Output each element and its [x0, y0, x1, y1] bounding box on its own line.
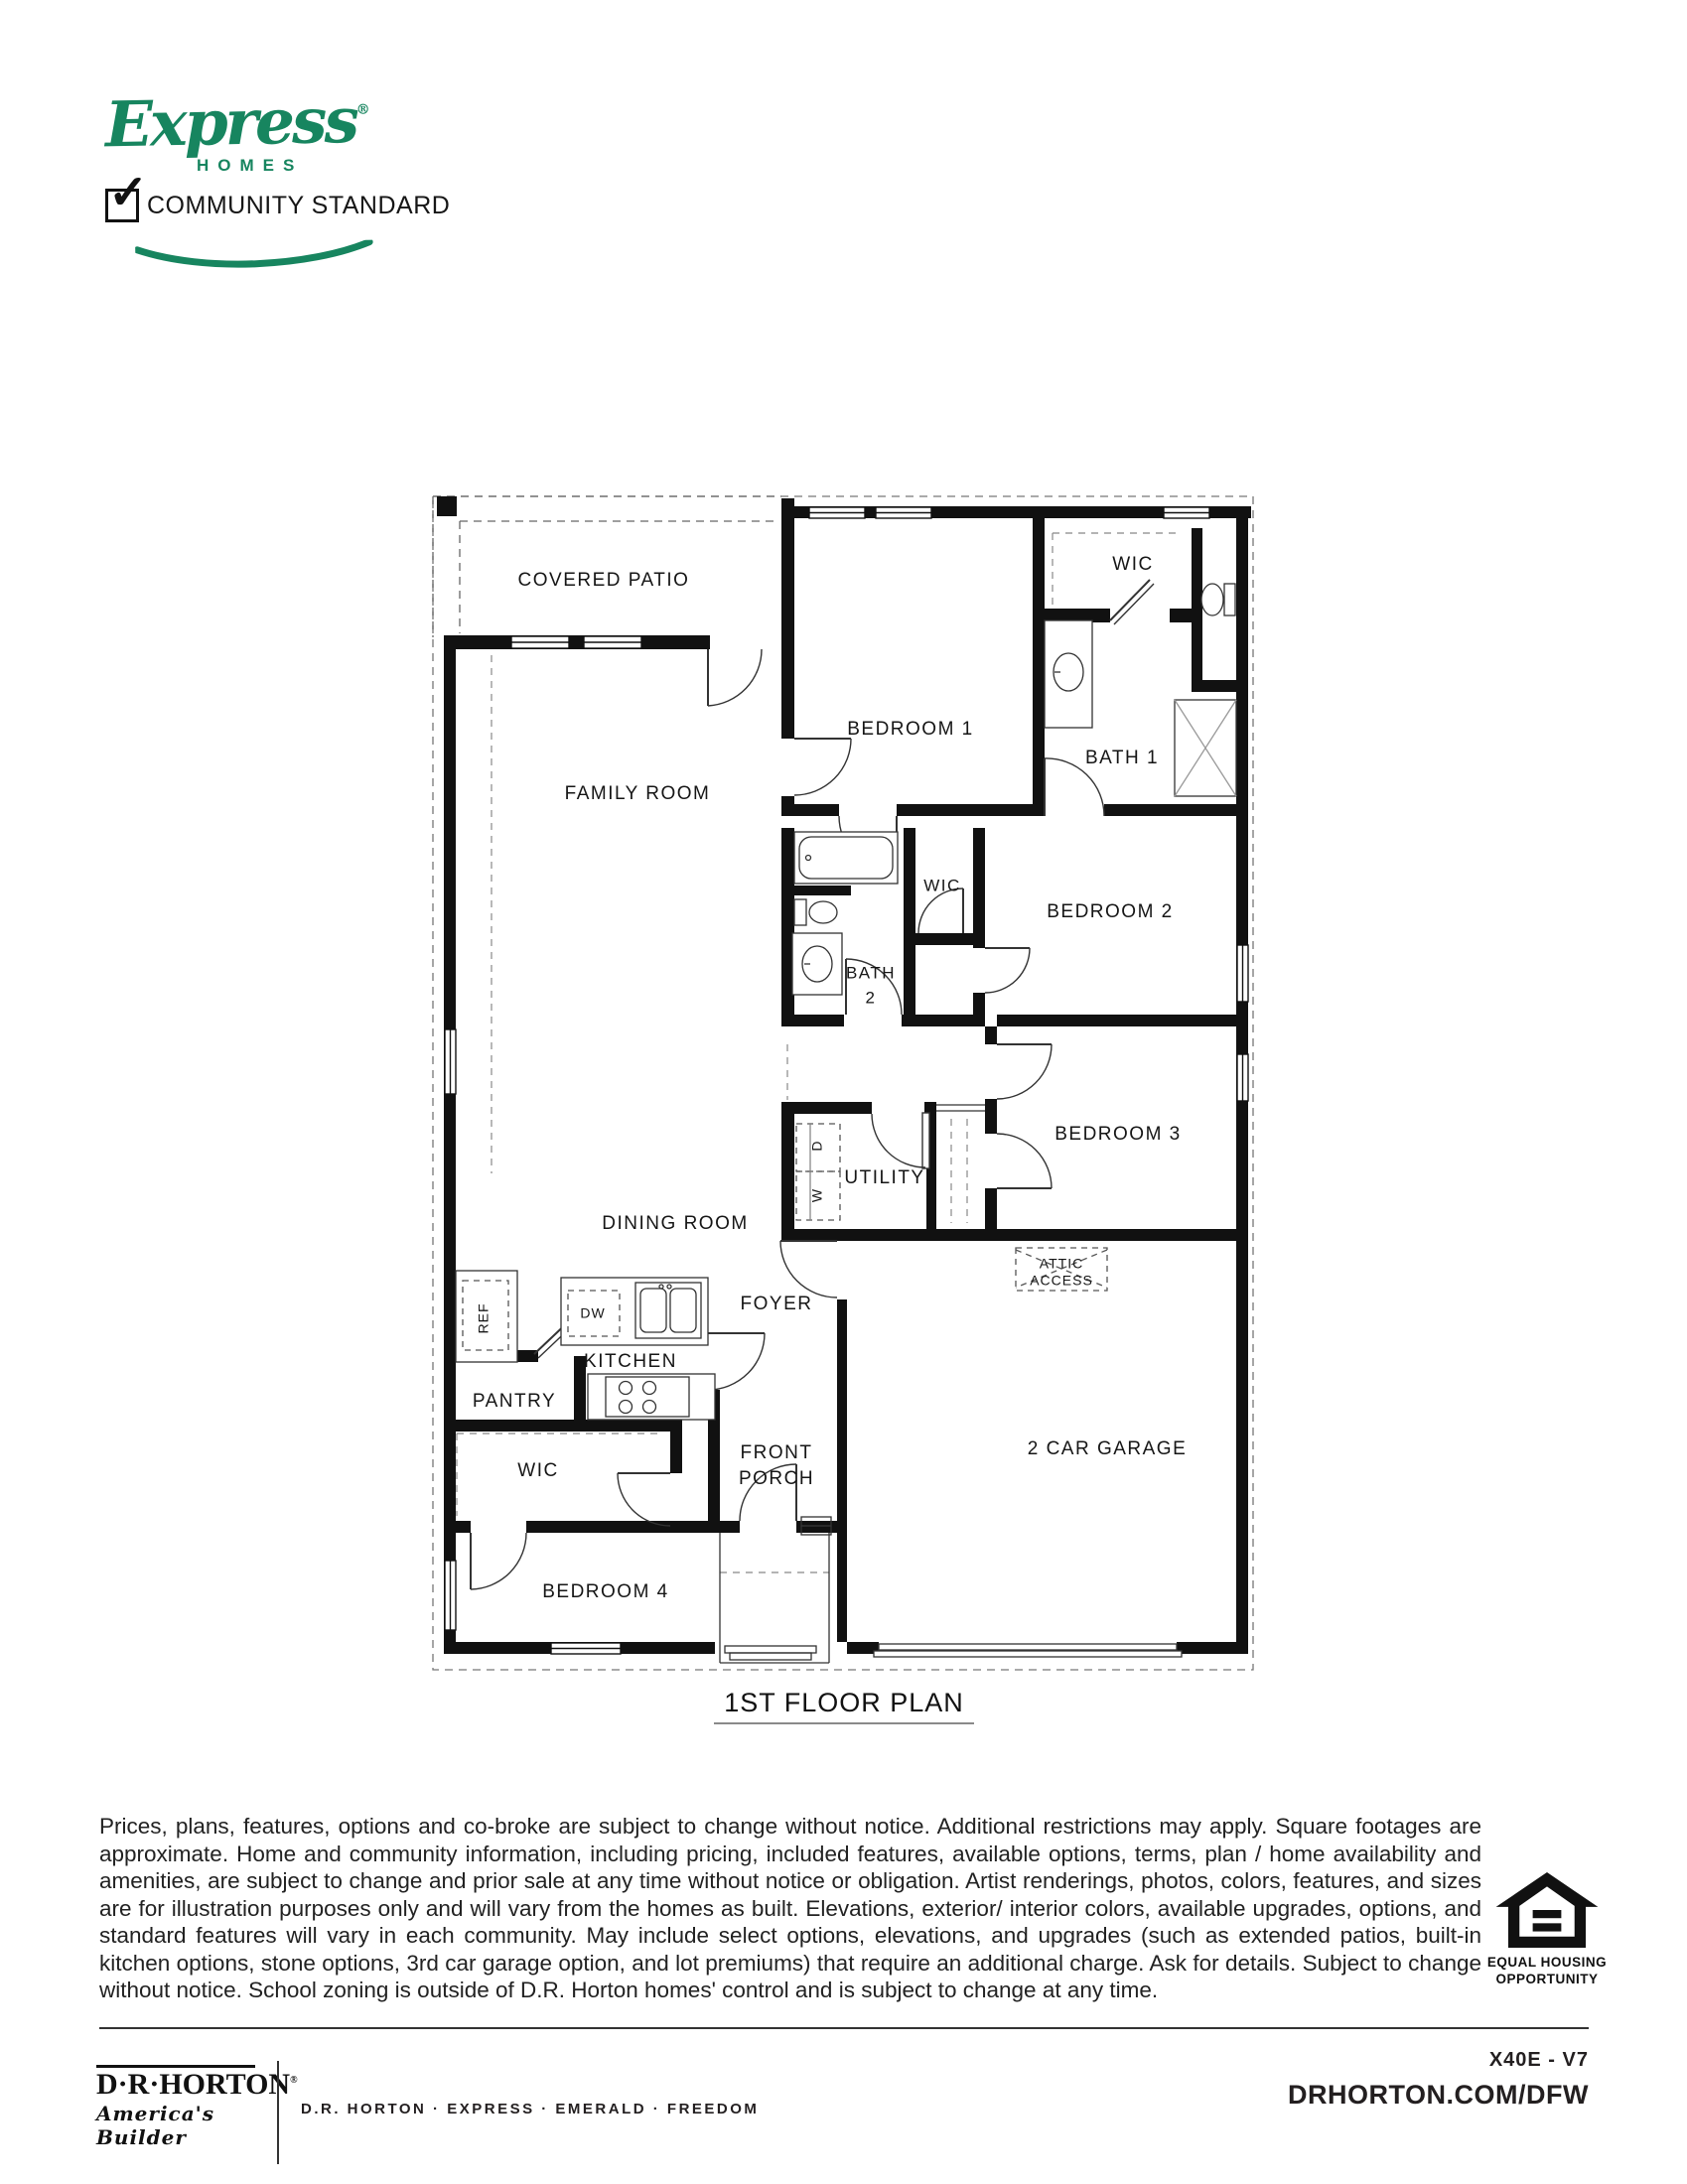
pantry-label: PANTRY	[473, 1391, 556, 1412]
bath2-label-line1: BATH	[846, 963, 896, 982]
shower	[1175, 700, 1236, 796]
bathtub	[794, 832, 898, 884]
window	[511, 636, 569, 648]
wic-primary-label: WIC	[1112, 554, 1153, 575]
bath1-label: BATH 1	[1085, 748, 1159, 768]
bedroom4-label: BEDROOM 4	[542, 1581, 669, 1602]
foyer-hall-door	[708, 1333, 765, 1390]
checkbox: ✓	[105, 189, 139, 222]
footer-divider-line	[99, 2027, 1589, 2029]
equal-housing-house-icon	[1495, 1872, 1599, 1948]
porch-outline	[720, 1517, 831, 1663]
wic-primary-door	[1110, 580, 1154, 624]
patio-door	[708, 649, 762, 706]
express-wordmark: Express®	[104, 89, 370, 157]
bedroom1-label: BEDROOM 1	[847, 719, 974, 740]
equal-housing-text: EQUAL HOUSING OPPORTUNITY	[1479, 1955, 1615, 1988]
plan-title-row: 1ST FLOOR PLAN	[427, 1688, 1261, 1724]
wic-hall-door	[918, 888, 963, 933]
footer-brand-list: D.R. HORTON · EXPRESS · EMERALD · FREEDO…	[301, 2101, 759, 2117]
sink-vanity	[1045, 620, 1092, 728]
bedroom2-door	[985, 948, 1030, 993]
wic-bedroom4-door	[618, 1473, 670, 1526]
window	[809, 507, 865, 518]
plan-title: 1ST FLOOR PLAN	[714, 1688, 974, 1724]
disclaimer-text: Prices, plans, features, options and co-…	[99, 1813, 1481, 2004]
homes-wordmark: HOMES	[197, 156, 522, 176]
window	[1237, 945, 1248, 1002]
community-standard-row: ✓ COMMUNITY STANDARD	[105, 189, 450, 222]
front-porch-label-line2: PORCH	[739, 1468, 814, 1489]
bedroom2-label: BEDROOM 2	[1047, 901, 1174, 922]
stove-counter	[588, 1374, 715, 1420]
walls	[437, 496, 1251, 1654]
attic-access-label-line1: ATTIC	[1040, 1256, 1083, 1272]
kitchen-label: KITCHEN	[584, 1351, 677, 1372]
bedroom3-door-upper	[997, 1044, 1052, 1099]
bedroom3-label: BEDROOM 3	[1054, 1124, 1182, 1145]
covered-patio-label: COVERED PATIO	[518, 570, 690, 591]
equal-housing-logo: EQUAL HOUSING OPPORTUNITY	[1479, 1872, 1615, 1988]
washer-label: W	[809, 1188, 825, 1202]
ref-label: REF	[476, 1303, 492, 1334]
registered-mark: ®	[356, 102, 370, 118]
front-porch-label-line1: FRONT	[741, 1442, 813, 1463]
drhorton-tagline: America's Builder	[96, 2102, 265, 2149]
floor-plan-svg: COVERED PATIO FAMILY ROOM BEDROOM 1 WIC …	[427, 488, 1261, 1680]
window	[445, 1029, 456, 1094]
wic-hall-label: WIC	[923, 876, 961, 894]
toilet	[794, 899, 837, 925]
plan-code: X40E - V7	[1288, 2049, 1589, 2072]
window	[445, 1561, 456, 1630]
cased-opening	[936, 1105, 985, 1111]
wic-bedroom4-label: WIC	[517, 1460, 558, 1481]
family-room-label: FAMILY ROOM	[565, 783, 711, 804]
double-sink	[635, 1283, 701, 1338]
covered-patio-outline	[433, 496, 781, 637]
toilet	[1201, 584, 1235, 615]
window	[1164, 507, 1209, 518]
window	[584, 636, 641, 648]
garage-entry-door	[780, 1241, 837, 1297]
utility-door	[872, 1113, 929, 1168]
drhorton-wordmark: D·R·HORTON®	[96, 2070, 265, 2100]
bedroom3-door-lower	[997, 1134, 1052, 1188]
floor-plan: COVERED PATIO FAMILY ROOM BEDROOM 1 WIC …	[427, 488, 1261, 1680]
community-standard-label: COMMUNITY STANDARD	[147, 192, 450, 220]
window	[1237, 1054, 1248, 1101]
foyer-label: FOYER	[741, 1294, 813, 1314]
website-url: DRHORTON.COM/DFW	[1288, 2080, 1589, 2111]
checkmark-icon: ✓	[108, 170, 148, 217]
dining-room-label: DINING ROOM	[602, 1213, 748, 1234]
footer-right-block: X40E - V7 DRHORTON.COM/DFW	[1288, 2049, 1589, 2111]
bedroom4-door	[471, 1533, 526, 1589]
garage-door	[874, 1644, 1182, 1657]
dryer-label: D	[809, 1140, 825, 1151]
footer-vertical-divider	[277, 2061, 279, 2164]
sink-vanity	[792, 933, 842, 995]
bedroom1-door	[794, 739, 851, 795]
drhorton-logo: D·R·HORTON® America's Builder	[96, 2065, 265, 2149]
window	[876, 507, 931, 518]
window	[551, 1643, 621, 1654]
attic-access-label-line2: ACCESS	[1030, 1273, 1093, 1289]
registered-mark: ®	[290, 2075, 297, 2086]
garage-label: 2 CAR GARAGE	[1028, 1438, 1188, 1459]
bath2-label-line2: 2	[866, 988, 877, 1007]
express-homes-logo: Express® HOMES	[105, 91, 522, 176]
utility-label: UTILITY	[844, 1167, 924, 1188]
dw-label: DW	[580, 1305, 605, 1321]
logo-swash	[135, 240, 373, 270]
